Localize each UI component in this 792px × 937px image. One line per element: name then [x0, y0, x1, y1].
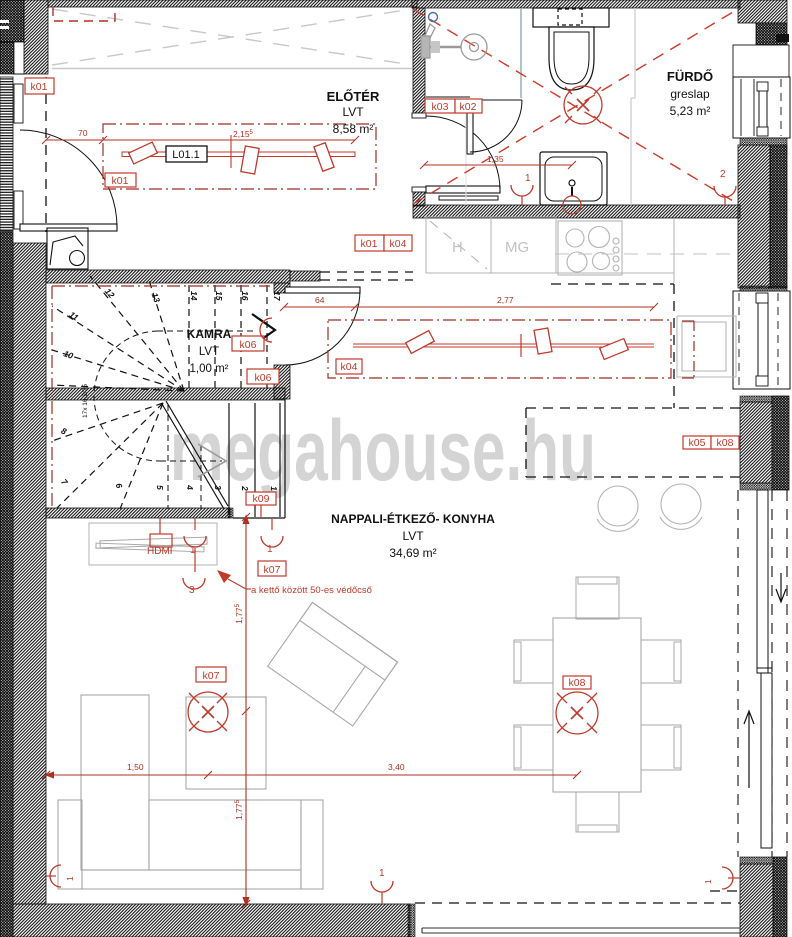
- svg-text:k07: k07: [203, 670, 220, 682]
- svg-text:k03: k03: [432, 101, 449, 113]
- svg-text:FÜRDŐ: FÜRDŐ: [667, 69, 713, 84]
- svg-text:1,35: 1,35: [487, 154, 504, 164]
- svg-text:k01: k01: [112, 175, 129, 187]
- svg-text:k06: k06: [255, 372, 272, 384]
- svg-text:NAPPALI-ÉTKEZŐ- KONYHA: NAPPALI-ÉTKEZŐ- KONYHA: [331, 511, 495, 526]
- svg-text:k08: k08: [569, 677, 586, 689]
- svg-text:a kettő között 50-es védőcső: a kettő között 50-es védőcső: [251, 585, 372, 596]
- svg-text:H: H: [452, 239, 463, 256]
- svg-text:megahouse.hu: megahouse.hu: [170, 403, 596, 499]
- svg-text:k09: k09: [253, 493, 270, 505]
- svg-text:16: 16: [240, 291, 250, 301]
- svg-text:1: 1: [703, 879, 713, 884]
- svg-text:13: 13: [150, 291, 163, 304]
- svg-text:6: 6: [114, 482, 125, 489]
- svg-text:1: 1: [65, 876, 75, 881]
- svg-text:5: 5: [155, 485, 165, 491]
- svg-text:15: 15: [214, 291, 224, 301]
- svg-text:3,40: 3,40: [388, 762, 405, 772]
- svg-text:k02: k02: [460, 101, 477, 113]
- svg-text:1: 1: [525, 173, 531, 184]
- svg-text:34,69 m²: 34,69 m²: [389, 546, 436, 560]
- svg-text:1,775: 1,775: [234, 799, 244, 820]
- svg-text:12: 12: [103, 286, 117, 300]
- svg-text:LVT: LVT: [402, 529, 424, 543]
- svg-text:3: 3: [213, 485, 223, 491]
- svg-text:LVT: LVT: [342, 105, 364, 119]
- svg-text:2,77: 2,77: [497, 295, 514, 305]
- svg-text:k05: k05: [689, 437, 706, 449]
- svg-text:k04: k04: [341, 361, 358, 373]
- svg-text:HDMI: HDMI: [147, 546, 173, 557]
- svg-text:2: 2: [240, 485, 250, 492]
- svg-text:8,58 m²: 8,58 m²: [333, 122, 374, 136]
- svg-text:1,50: 1,50: [127, 762, 144, 772]
- svg-text:10: 10: [62, 348, 75, 361]
- svg-text:1,00 m²: 1,00 m²: [190, 363, 229, 375]
- svg-text:8: 8: [60, 426, 69, 437]
- svg-text:2,155: 2,155: [233, 129, 254, 139]
- svg-text:k04: k04: [390, 238, 407, 250]
- svg-text:k01: k01: [361, 238, 378, 250]
- svg-text:ELŐTÉR: ELŐTÉR: [327, 89, 380, 104]
- svg-text:3: 3: [189, 585, 195, 596]
- svg-text:2: 2: [720, 169, 726, 180]
- svg-text:k08: k08: [717, 437, 734, 449]
- svg-text:1: 1: [269, 486, 279, 492]
- svg-text:11: 11: [67, 309, 80, 322]
- svg-text:70: 70: [78, 128, 88, 138]
- svg-text:17: 17: [272, 291, 282, 302]
- svg-text:4: 4: [185, 484, 195, 491]
- svg-text:64: 64: [315, 295, 325, 305]
- svg-text:7: 7: [59, 477, 71, 488]
- svg-text:5,23 m²: 5,23 m²: [670, 104, 711, 118]
- svg-text:greslap: greslap: [670, 87, 710, 101]
- svg-text:17x 16,2/25: 17x 16,2/25: [82, 384, 89, 418]
- svg-text:LVT: LVT: [199, 346, 219, 358]
- svg-text:1,775: 1,775: [234, 603, 244, 624]
- svg-text:1: 1: [267, 544, 273, 555]
- svg-text:k07: k07: [264, 564, 281, 576]
- svg-text:k01: k01: [31, 81, 48, 93]
- svg-text:KAMRA: KAMRA: [187, 327, 232, 341]
- svg-text:14: 14: [189, 291, 199, 301]
- svg-text:MG: MG: [505, 239, 529, 256]
- svg-text:L01.1: L01.1: [172, 149, 200, 161]
- svg-text:k06: k06: [240, 339, 257, 351]
- svg-text:1: 1: [379, 868, 385, 879]
